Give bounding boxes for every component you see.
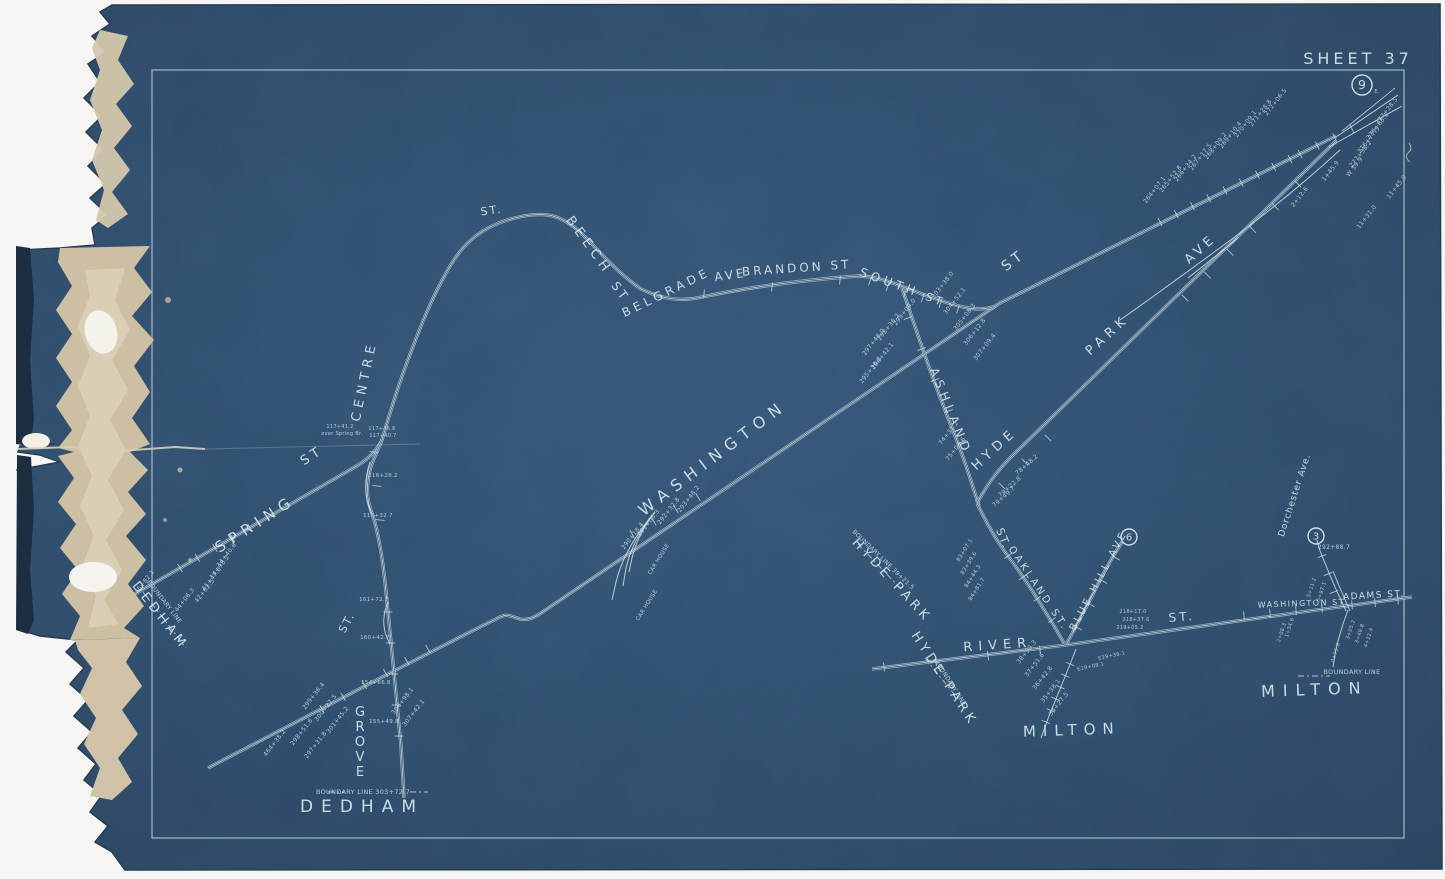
label-river-st-suffix: ST. bbox=[1168, 609, 1195, 625]
label-grove-st: V bbox=[356, 750, 365, 765]
label-grove-st: O bbox=[355, 735, 365, 750]
label-milton-right: MILTON bbox=[1261, 678, 1369, 701]
blueprint-photo: SPRINGSTCENTREST.ST.BEECHSTBELGRADEAVEBR… bbox=[0, 0, 1445, 879]
label-grove-st: R bbox=[355, 720, 364, 735]
station-label: 161+72.7 bbox=[359, 597, 389, 603]
label-milton-center: MILTON bbox=[1023, 719, 1121, 740]
station-label: 154+66.8 bbox=[361, 680, 391, 686]
station-label: 218+17.0 bbox=[1119, 609, 1146, 615]
station-label: E. bbox=[1374, 89, 1379, 95]
label-grove-st: G bbox=[355, 705, 365, 720]
map-note: BOUNDARY LINE 303+72.7 bbox=[316, 788, 410, 796]
label-grove-st: E bbox=[356, 765, 364, 780]
blueprint-map: SPRINGSTCENTREST.ST.BEECHSTBELGRADEAVEBR… bbox=[0, 0, 1445, 879]
label-dedham-bottom: DEDHAM bbox=[300, 797, 424, 817]
station-label: 117+46.6 bbox=[368, 426, 395, 432]
station-label: 218+37.6 bbox=[1122, 617, 1149, 623]
route-marker-6: 6 bbox=[1126, 532, 1132, 543]
route-marker-9: 9 bbox=[1358, 77, 1366, 92]
station-label: 117+41.2 bbox=[326, 424, 353, 430]
station-tick bbox=[1270, 609, 1271, 618]
station-label: 117+40.7 bbox=[369, 433, 396, 439]
station-label: 292+88.7 bbox=[1318, 544, 1350, 551]
station-label: 219+05.2 bbox=[1116, 625, 1143, 631]
station-label: 155+49.8 bbox=[369, 719, 399, 725]
map-note: BOUNDARY LINE bbox=[1324, 668, 1381, 676]
map-note: over Spring Br. bbox=[321, 431, 363, 437]
station-label: 160+42.7 bbox=[360, 635, 390, 641]
station-label: 115+32.7 bbox=[363, 513, 393, 519]
station-label: 116+28.2 bbox=[368, 473, 398, 479]
station-tick bbox=[1244, 612, 1245, 621]
sheet-title: SHEET 37 bbox=[1303, 49, 1413, 68]
route-marker-3: 3 bbox=[1313, 531, 1319, 542]
